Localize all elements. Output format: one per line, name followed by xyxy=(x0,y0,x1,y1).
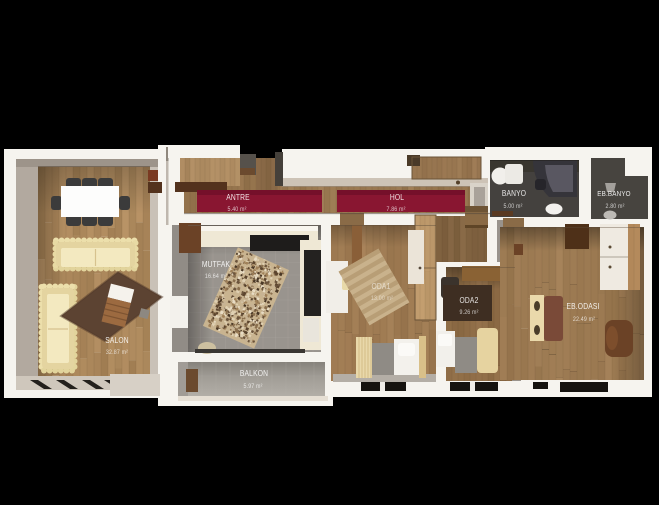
svg-text:SALON: SALON xyxy=(105,335,129,345)
svg-text:22.49 m²: 22.49 m² xyxy=(573,317,595,323)
svg-text:5.40 m²: 5.40 m² xyxy=(227,207,246,213)
svg-text:ODA1: ODA1 xyxy=(372,281,391,291)
svg-text:BALKON: BALKON xyxy=(240,368,268,378)
svg-text:HOL: HOL xyxy=(390,192,404,202)
svg-text:9.26 m²: 9.26 m² xyxy=(459,310,478,316)
svg-text:ANTRE: ANTRE xyxy=(226,192,250,202)
svg-text:2.80 m²: 2.80 m² xyxy=(605,204,624,210)
svg-text:BANYO: BANYO xyxy=(502,188,526,198)
svg-text:ODA2: ODA2 xyxy=(460,295,479,305)
svg-text:16.64 m²: 16.64 m² xyxy=(205,274,227,280)
svg-text:7.86 m²: 7.86 m² xyxy=(386,207,405,213)
svg-text:EB.ODASI: EB.ODASI xyxy=(566,301,599,311)
svg-text:5.00 m²: 5.00 m² xyxy=(503,204,522,210)
svg-text:MUTFAK: MUTFAK xyxy=(202,259,230,269)
svg-text:32.87 m²: 32.87 m² xyxy=(106,350,128,356)
svg-text:13.00 m²: 13.00 m² xyxy=(371,296,393,302)
svg-text:5.97 m²: 5.97 m² xyxy=(243,384,262,390)
svg-text:EB.BANYO: EB.BANYO xyxy=(597,191,631,199)
